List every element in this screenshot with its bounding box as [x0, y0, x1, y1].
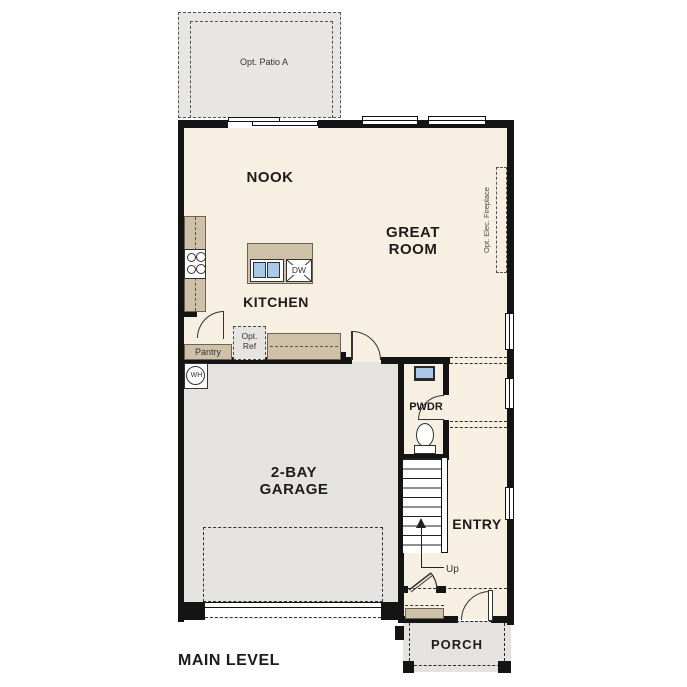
- nook-window: [362, 116, 418, 125]
- right-window-2: [505, 378, 514, 409]
- fireplace-label: Opt. Elec. Fireplace: [482, 167, 495, 273]
- main-level-title: MAIN LEVEL: [178, 652, 338, 670]
- wall-garage-bottom-left: [178, 602, 205, 620]
- garage-label: 2-BAY GARAGE: [250, 464, 338, 498]
- pwdr-sink-icon: [414, 366, 435, 381]
- porch-threshold-dash: [456, 621, 492, 622]
- flex-opening-bottom: [450, 421, 507, 428]
- garage-entry-door-leaf: [351, 331, 353, 360]
- closet-shelf: [405, 608, 444, 619]
- flex-opening-top: [450, 357, 507, 364]
- great-room-window: [428, 116, 486, 125]
- closet-shelf-dash: [405, 605, 444, 606]
- opt-ref-label: Opt. Ref: [236, 331, 263, 351]
- porch-corner-block: [395, 626, 404, 640]
- nook-label: NOOK: [225, 170, 315, 187]
- wall-mid-right: [381, 357, 450, 364]
- toilet-bowl-icon: [416, 423, 434, 447]
- water-heater-label: WH: [186, 372, 207, 379]
- wall-entry-bottom-right: [491, 616, 513, 623]
- dishwasher-box: DW: [286, 259, 312, 282]
- up-label: Up: [446, 564, 468, 575]
- entry-label: ENTRY: [450, 517, 504, 532]
- wall-pwdr-right-top: [443, 357, 449, 395]
- kitchen-label: KITCHEN: [231, 295, 321, 310]
- porch-label: PORCH: [417, 638, 497, 652]
- right-window-1: [505, 313, 514, 350]
- porch-post-left: [403, 661, 414, 673]
- pantry-label: Pantry: [186, 347, 230, 357]
- fireplace-outline: [496, 167, 507, 273]
- up-arrow-icon: [416, 518, 426, 528]
- wall-right: [507, 120, 514, 625]
- floor-plan: Opt. Patio A PORCH Opt. Elec. Fireplace: [0, 0, 687, 687]
- pwdr-door-leaf: [418, 419, 444, 420]
- kitchen-bottom-counter: [267, 333, 341, 360]
- sliding-door-panel-inner: [252, 121, 318, 126]
- garage-door-dashed-outline: [203, 527, 383, 602]
- stair-railing: [441, 458, 448, 553]
- front-door-leaf: [488, 590, 493, 621]
- stairs: [403, 458, 443, 553]
- cooktop-icon: [184, 249, 206, 279]
- water-heater-box: WH: [184, 363, 208, 389]
- toilet-tank-icon: [414, 445, 436, 454]
- porch-post-right: [498, 661, 511, 673]
- patio-label: Opt. Patio A: [214, 57, 314, 67]
- closet-door: [403, 558, 445, 594]
- garage-apron-dash: [205, 617, 381, 618]
- entry-window: [505, 487, 514, 520]
- patio-inner-outline: [190, 21, 333, 118]
- garage-door: [205, 602, 381, 608]
- pantry-door-leaf: [223, 311, 224, 339]
- great-room-label: GREAT ROOM: [370, 224, 456, 258]
- dishwasher-label: DW: [290, 265, 308, 275]
- sink-icon: [250, 259, 284, 282]
